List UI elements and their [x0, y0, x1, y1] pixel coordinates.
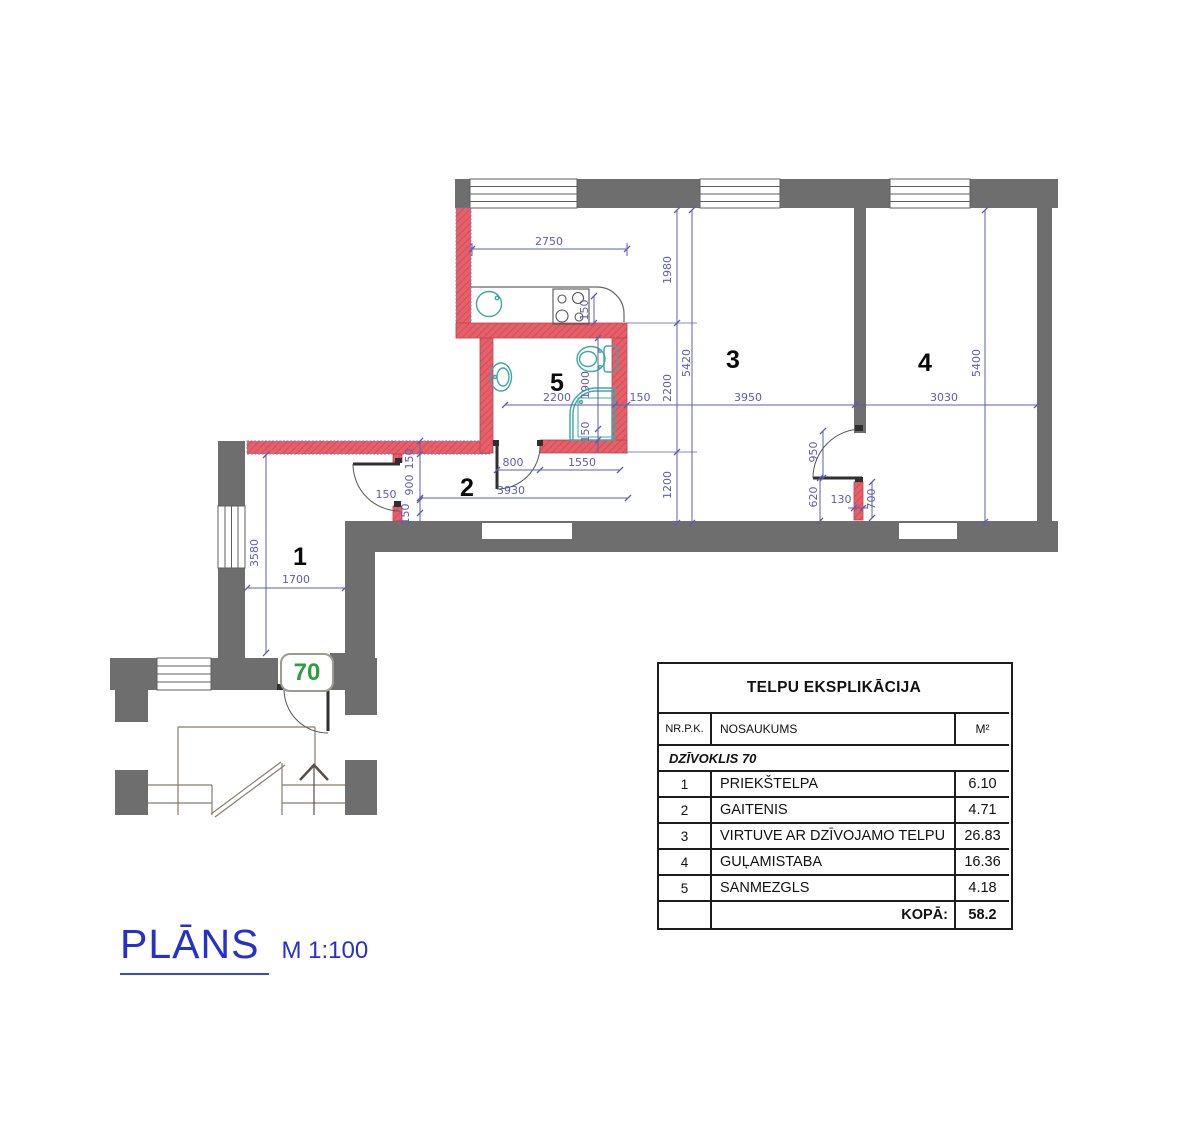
table-cell-name: PRIEKŠTELPA — [712, 772, 956, 798]
drawing-title-block: PLĀNS M 1:100 — [120, 921, 368, 975]
table-cell-area: 4.18 — [956, 876, 1009, 902]
table-cell-name: GAITENIS — [712, 798, 956, 824]
dim-label: 3580 — [248, 539, 261, 567]
dim-label: 1700 — [282, 573, 310, 586]
room-number-3: 3 — [726, 346, 740, 374]
dim-label: 800 — [503, 456, 524, 469]
dim-label: 620 — [807, 487, 820, 508]
table-cell-name: GUĻAMISTABA — [712, 850, 956, 876]
column-header-area: M² — [956, 714, 1009, 746]
dim-label: 3930 — [497, 484, 525, 497]
dim-label: 5420 — [680, 349, 693, 377]
table-cell-area: 6.10 — [956, 772, 1009, 798]
table-cell-nr: 4 — [659, 850, 712, 876]
table-cell-name: VIRTUVE AR DZĪVOJAMO TELPU — [712, 824, 956, 850]
table-group-row: DZĪVOKLIS 70 — [659, 746, 1009, 772]
explication-table: TELPU EKSPLIKĀCIJA NR.P.K. NOSAUKUMS M² … — [657, 662, 1013, 930]
table-cell-area: 4.71 — [956, 798, 1009, 824]
table-cell-nr: 2 — [659, 798, 712, 824]
table-cell-name: SANMEZGLS — [712, 876, 956, 902]
floor-plan-page: 2750 1980 5420 2200 1200 3950 3030 5400 … — [0, 0, 1200, 1143]
dim-label: 700 — [865, 489, 878, 510]
table-cell-nr: 5 — [659, 876, 712, 902]
drawing-scale: M 1:100 — [281, 937, 368, 965]
dim-label: 5400 — [970, 349, 983, 377]
walls-new — [247, 208, 863, 521]
toilet-icon — [577, 346, 617, 372]
table-total-value: 58.2 — [956, 902, 1009, 928]
room-number-2: 2 — [460, 474, 474, 502]
kitchen-sink-icon — [477, 292, 502, 317]
dim-label: 950 — [807, 442, 820, 463]
bathroom-sink-icon — [491, 363, 512, 391]
table-cell-area: 26.83 — [956, 824, 1009, 850]
dim-label: 1550 — [568, 456, 596, 469]
table-cell-area: 16.36 — [956, 850, 1009, 876]
windows — [157, 179, 970, 690]
table-cell-nr: 3 — [659, 824, 712, 850]
dim-label: 1980 — [661, 256, 674, 284]
dim-label: 150 — [376, 488, 397, 501]
table-title: TELPU EKSPLIKĀCIJA — [659, 664, 1009, 714]
dim-label: 150 — [403, 449, 416, 470]
table-total-label: KOPĀ: — [712, 902, 956, 928]
dim-label: 150 — [399, 504, 412, 525]
dim-label: 130 — [831, 493, 852, 506]
apartment-number-badge: 70 — [280, 653, 334, 692]
dim-label: 150 — [579, 422, 592, 443]
fixtures — [477, 289, 618, 440]
staircase — [148, 727, 345, 817]
dim-label: 1200 — [661, 471, 674, 499]
room-number-5: 5 — [550, 369, 564, 397]
apartment-number: 70 — [294, 659, 321, 687]
room-number-1: 1 — [293, 543, 307, 571]
column-header-name: NOSAUKUMS — [712, 714, 956, 746]
drawing-title: PLĀNS — [120, 921, 269, 975]
dim-label: 3030 — [930, 391, 958, 404]
table-cell-empty — [659, 902, 712, 928]
shower-icon — [570, 388, 615, 440]
dim-label: 150 — [578, 300, 591, 321]
room-number-4: 4 — [918, 349, 932, 377]
dim-label: 150 — [630, 391, 651, 404]
column-header-nr: NR.P.K. — [659, 714, 712, 746]
dim-label: 900 — [403, 475, 416, 496]
dim-label: 1900 — [579, 371, 592, 399]
table-cell-nr: 1 — [659, 772, 712, 798]
dim-label: 2750 — [535, 235, 563, 248]
dim-label: 2200 — [661, 374, 674, 402]
dim-label: 3950 — [734, 391, 762, 404]
